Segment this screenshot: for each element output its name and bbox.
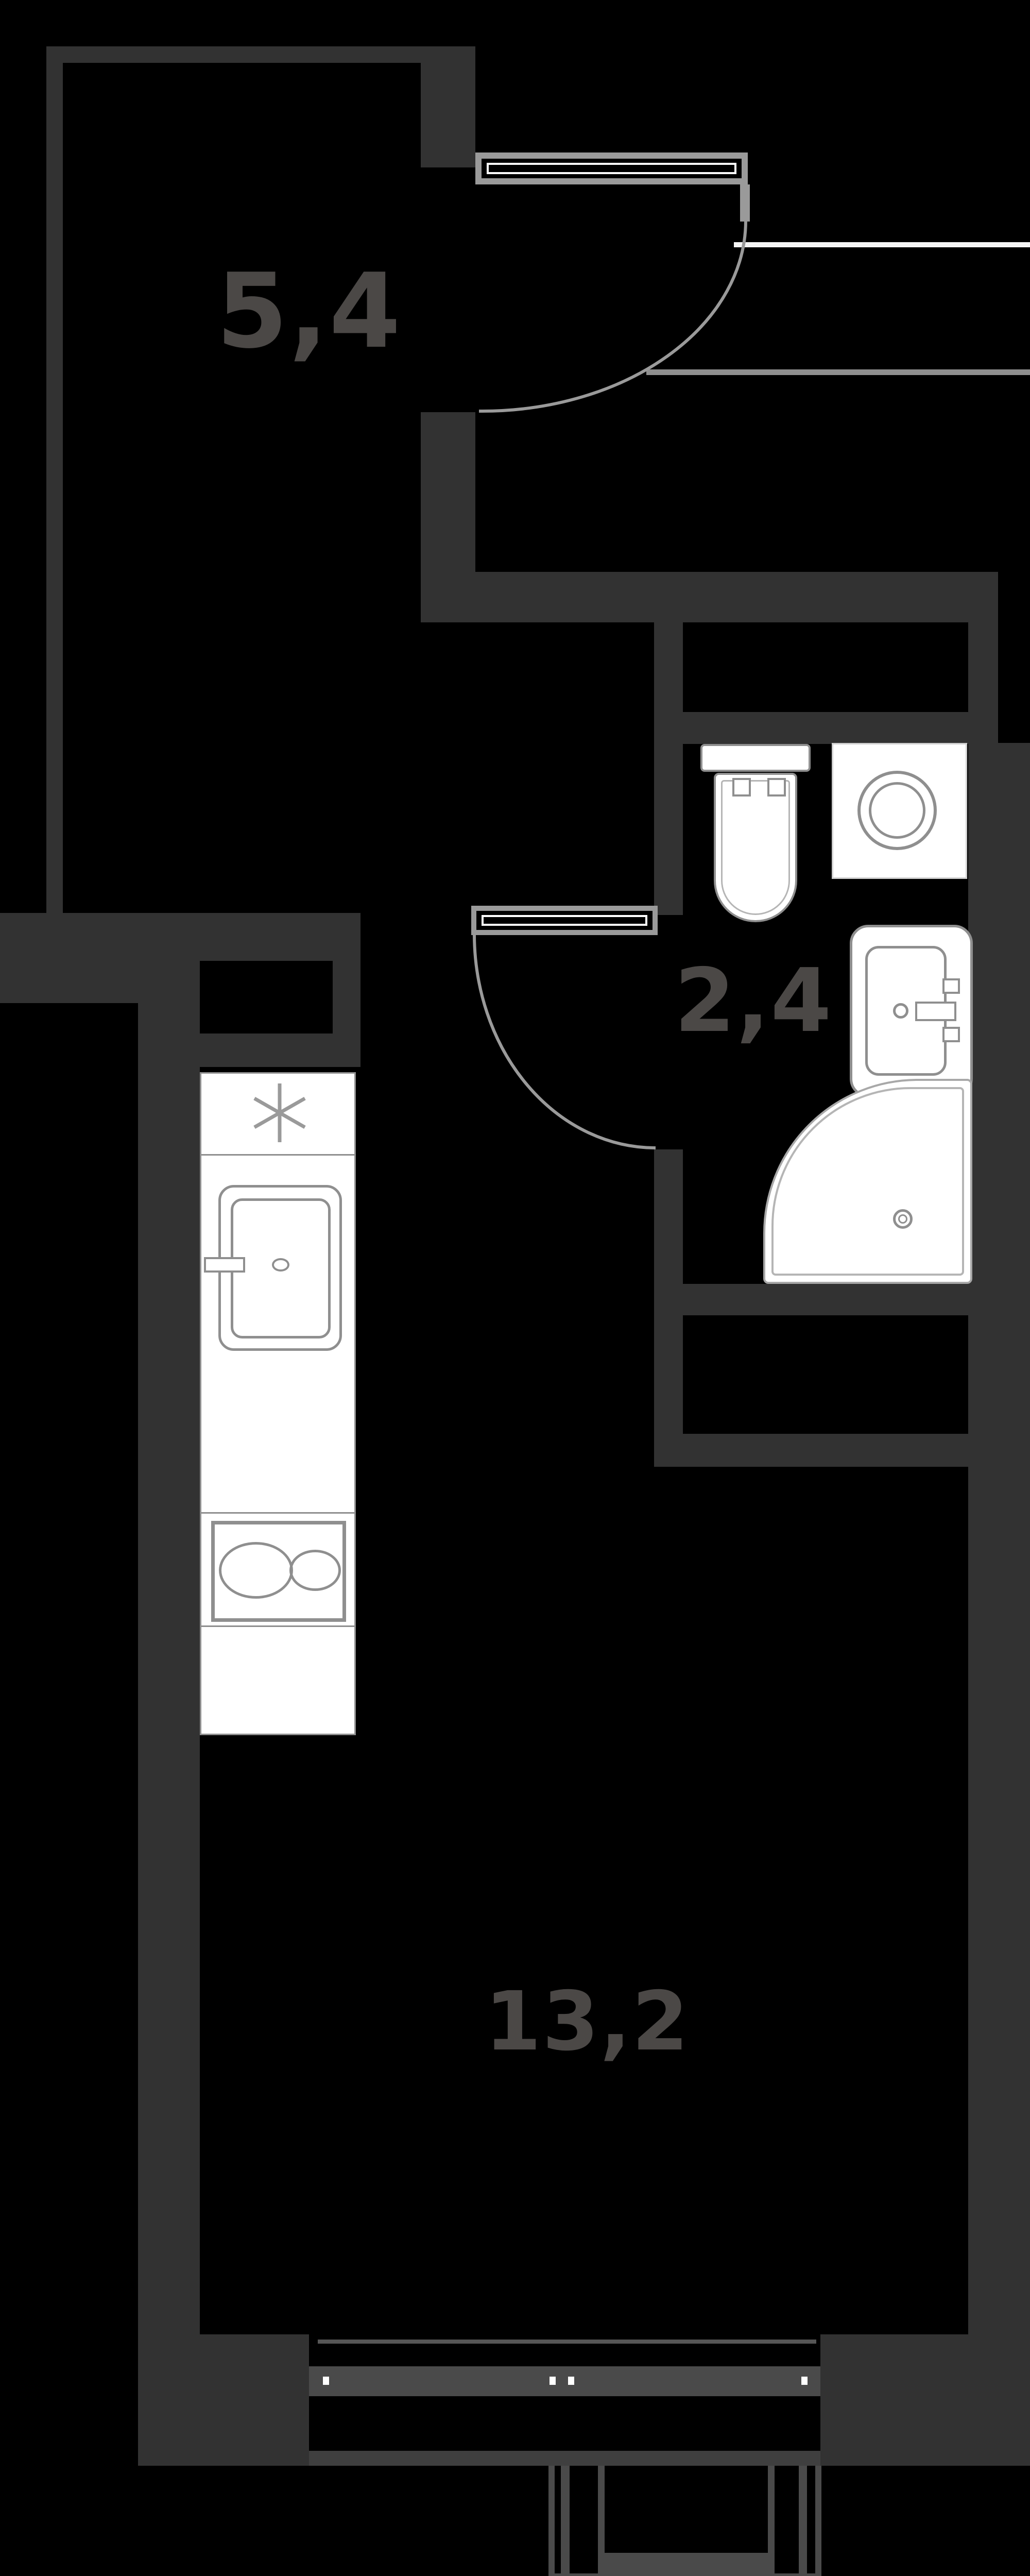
- window-tick-2: [550, 2377, 556, 2385]
- wall-entry-jamb-upper: [421, 63, 475, 167]
- washbasin-tap-bottom: [942, 1027, 960, 1042]
- stove-burner-small: [289, 1550, 341, 1591]
- wall-left-lower: [138, 1067, 200, 2466]
- floor-plan: 5,4 2,4 13,2: [0, 0, 1030, 2576]
- counter-divider-2: [200, 1512, 356, 1514]
- washbasin-faucet-spout: [915, 1002, 956, 1021]
- entry-door-endcap: [740, 184, 750, 222]
- wall-bathroom-left-lower: [654, 1149, 683, 1467]
- toilet-bowl-inner: [721, 780, 790, 915]
- entry-door-slot: [487, 163, 736, 174]
- wall-alcove-bottom: [654, 1434, 1030, 1467]
- kitchen-sink-drain: [272, 1258, 289, 1272]
- entry-door-arc: [479, 221, 746, 411]
- kitchen-counter: [200, 1072, 356, 1735]
- balcony-rail-bottom: [598, 2553, 775, 2576]
- wall-bathroom-left-upper: [654, 622, 683, 915]
- washbasin-tap-top: [942, 978, 960, 994]
- stove-burner-large: [219, 1542, 293, 1599]
- exterior-line-white: [734, 242, 1030, 247]
- washbasin-faucet-knob: [893, 1003, 908, 1019]
- shower-drain-inner: [898, 1214, 907, 1224]
- wall-entry-jamb-lower: [421, 412, 475, 572]
- counter-divider-3: [200, 1625, 356, 1627]
- bathroom-door-leaf: [471, 906, 658, 935]
- balcony-side-left-thin: [548, 2466, 555, 2576]
- hallway-area-label: 5,4: [180, 260, 438, 363]
- bathroom-area-label: 2,4: [650, 957, 856, 1045]
- window-frame-bottom: [309, 2451, 820, 2466]
- window-tick-1: [323, 2377, 329, 2385]
- wall-right-main: [968, 743, 1030, 2466]
- toilet-button-left: [732, 778, 751, 796]
- balcony-side-right-thin: [815, 2466, 821, 2576]
- kitchen-sink-faucet: [204, 1257, 245, 1273]
- living-room-area-label: 13,2: [458, 1981, 716, 2062]
- wall-bathroom-bottom: [683, 1284, 968, 1315]
- kitchen-niche: [200, 961, 333, 1033]
- entry-door-leaf: [475, 152, 748, 184]
- balcony-side-left-thick: [561, 2466, 570, 2576]
- window-sash-band: [309, 2366, 820, 2396]
- wall-right-upper: [968, 622, 998, 743]
- window-tick-3: [568, 2377, 574, 2385]
- window-tick-4: [801, 2377, 808, 2385]
- wall-bottom-right-block: [820, 2334, 1030, 2466]
- wall-bathroom-ledge: [683, 712, 968, 744]
- window-frame-top: [318, 2340, 816, 2344]
- bathroom-door-slot: [482, 915, 647, 926]
- wall-left-upper: [46, 63, 63, 913]
- exterior-line-gray: [646, 369, 1030, 375]
- bathroom-door-arc: [474, 934, 656, 1148]
- balcony-side-right-thick: [799, 2466, 807, 2576]
- wall-bathroom-top: [421, 572, 998, 622]
- toilet-button-right: [767, 778, 786, 796]
- counter-divider-1: [200, 1154, 356, 1156]
- washing-machine-door-inner: [869, 782, 925, 839]
- wall-hall-bottom: [0, 913, 138, 1003]
- toilet-tank: [700, 744, 811, 772]
- shower-tray-inner: [771, 1087, 964, 1276]
- wall-top: [46, 46, 475, 63]
- wall-bottom-left-block: [138, 2334, 309, 2466]
- balcony-bottom-line-1: [548, 2573, 821, 2576]
